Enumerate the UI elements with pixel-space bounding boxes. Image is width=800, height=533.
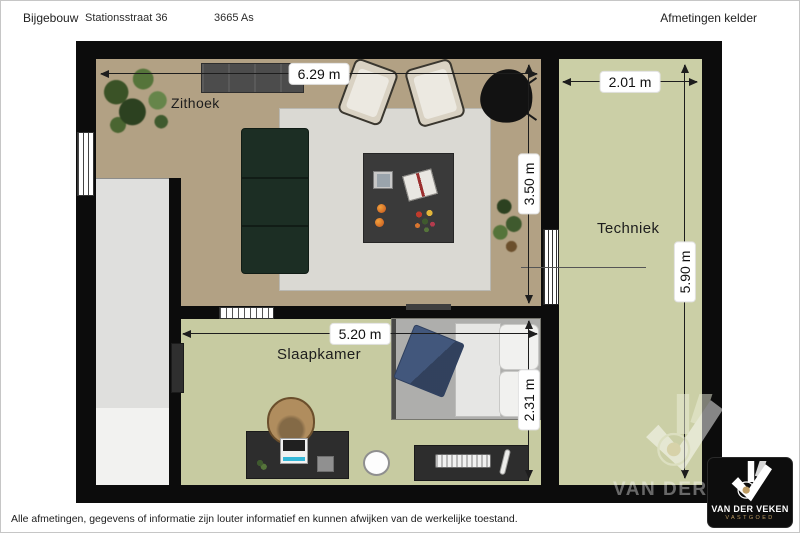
brand-logo-box: VAN DER VEKEN VASTGOED <box>707 457 793 528</box>
dimension-line-tech-width: 2.01 m <box>563 81 697 82</box>
laptop-screen <box>283 440 305 451</box>
street-address: Stationsstraat 36 <box>85 12 168 24</box>
fruit <box>377 204 386 213</box>
arrow-left-icon <box>182 330 191 338</box>
arrow-right-icon <box>529 330 538 338</box>
chair-cushion <box>413 68 458 120</box>
room-label-bedroom: Slaapkamer <box>277 346 361 363</box>
arrow-up-icon <box>681 64 689 73</box>
dimension-label: 5.90 m <box>674 241 696 302</box>
window-bedroom-wall <box>219 307 274 319</box>
brand-name: VAN DER VEKEN <box>708 504 792 514</box>
arrow-left-icon <box>100 70 109 78</box>
bed-sheet <box>455 323 501 417</box>
room-label-living: Zithoek <box>171 95 220 111</box>
dimension-label: 2.01 m <box>600 71 661 93</box>
page-title: Afmetingen kelder <box>660 11 757 25</box>
dimension-line-bedroom-width: 5.20 m <box>183 333 537 334</box>
radiator <box>435 454 491 468</box>
stool <box>363 450 390 476</box>
sofa <box>241 128 309 274</box>
dimension-line-bedroom-depth: 2.31 m <box>528 321 529 478</box>
project-name: Bijgebouw <box>23 11 78 25</box>
stairwell-landing <box>96 408 169 485</box>
section-line <box>521 267 646 268</box>
dimension-label: 3.50 m <box>518 154 540 215</box>
arrow-right-icon <box>689 78 698 86</box>
dimension-label: 6.29 m <box>289 63 350 85</box>
wardrobe <box>171 343 184 393</box>
brand-subtitle: VASTGOED <box>708 515 792 521</box>
tablet <box>373 171 393 189</box>
brand-logo-icon <box>725 461 777 503</box>
arrow-up-icon <box>525 320 533 329</box>
dimension-line-living-width: 6.29 m <box>101 73 537 74</box>
chair-cushion <box>345 68 389 118</box>
arrow-left-icon <box>562 78 571 86</box>
laptop <box>280 438 308 464</box>
arrow-up-icon <box>525 64 533 73</box>
arrow-down-icon <box>525 470 533 479</box>
fruit <box>375 218 384 227</box>
wall-top <box>76 41 722 59</box>
wall-stairwell <box>169 178 181 485</box>
window-left-wall <box>77 132 94 196</box>
floorplan-page: Bijgebouw Stationsstraat 36 3665 As Afme… <box>0 0 800 533</box>
dimension-line-living-depth: 3.50 m <box>528 65 529 303</box>
door-opening <box>406 304 451 310</box>
laptop-keyboard <box>283 457 305 461</box>
disclaimer-text: Alle afmetingen, gegevens of informatie … <box>11 513 518 525</box>
room-label-tech: Techniek <box>597 220 659 237</box>
flower-bouquet <box>410 206 440 234</box>
dimension-label: 2.31 m <box>518 369 540 430</box>
plant-icon <box>254 457 269 472</box>
arrow-down-icon <box>525 295 533 304</box>
tablet-screen <box>377 174 390 187</box>
desk-accessory <box>317 456 334 472</box>
dimension-label: 5.20 m <box>330 323 391 345</box>
postal-city: 3665 As <box>214 12 254 24</box>
